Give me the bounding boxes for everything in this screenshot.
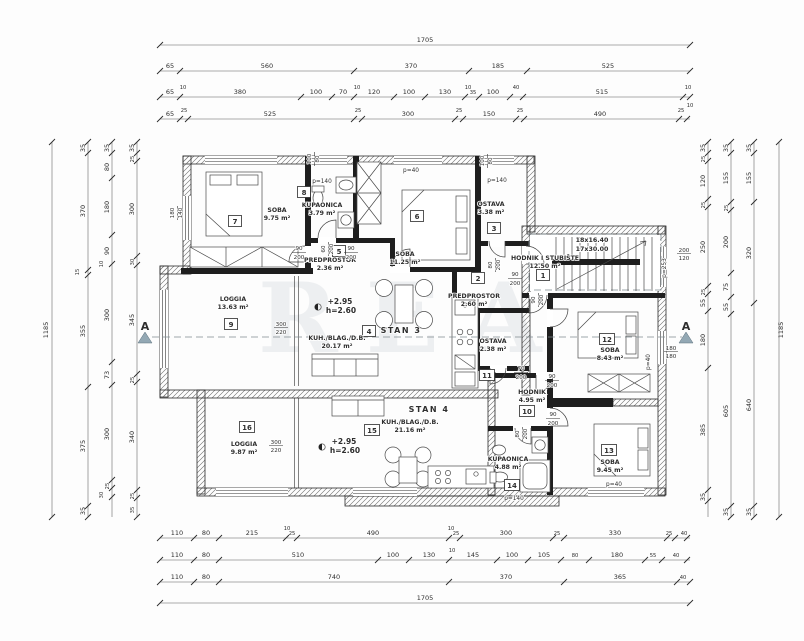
dim-label: 100 — [487, 88, 499, 96]
room-area: 11.25 m² — [390, 259, 421, 266]
room-number: 15 — [367, 427, 377, 435]
dim-label: 490 — [594, 110, 606, 118]
dim-label: 100 — [310, 88, 322, 96]
dim-label: 25 — [355, 108, 362, 114]
dim-label: 25 — [724, 205, 730, 212]
dim-label: 355 — [79, 325, 87, 337]
room-number: 14 — [507, 482, 517, 490]
room-name: SOBA — [600, 347, 619, 354]
room-name: PREDPROSTOR — [448, 293, 500, 300]
room-number: 12 — [602, 336, 612, 344]
window-size: 140 — [178, 207, 184, 218]
dimension-labels-left: 1185 35 370 15 355 375 35 35 80 180 90 1… — [42, 144, 136, 515]
door-size: 200 — [329, 243, 335, 254]
room-number: 7 — [233, 218, 238, 226]
room-area: 9.45 m² — [597, 467, 624, 474]
dim-label: 25 — [130, 156, 136, 163]
dim-label: 345 — [128, 314, 136, 326]
floor-plan-page: REA A A +2.95 h=2.60 +2.95 h=2.60 — [0, 0, 804, 641]
dim-label: 15 — [75, 269, 81, 276]
room-number: 13 — [604, 447, 614, 455]
dim-label: 180 — [611, 551, 623, 559]
room-number: 8 — [302, 189, 307, 197]
room-number: 4 — [367, 328, 372, 336]
dim-label: 155 — [722, 172, 730, 184]
dim-label: 375 — [79, 440, 87, 452]
dim-label: 110 — [171, 551, 183, 559]
dim-label: 100 — [403, 88, 415, 96]
dim-label: 25 — [701, 289, 707, 296]
room-area: 4.95 m² — [519, 397, 546, 404]
level-elevation-stan3: +2.95 — [328, 297, 353, 306]
dim-label: 65 — [166, 110, 174, 118]
door-size: 60 — [321, 245, 327, 253]
dim-label: 185 — [492, 62, 504, 70]
window-size: 220 — [276, 330, 287, 336]
room-area: 3.79 m² — [309, 210, 336, 217]
room-number: 3 — [492, 225, 497, 233]
dim-label: 300 — [500, 529, 512, 537]
dim-label: 300 — [402, 110, 414, 118]
dim-label: 35 — [745, 508, 753, 516]
dim-label: 10 — [99, 261, 105, 268]
dim-label: 73 — [103, 371, 111, 379]
dim-label: 90 — [103, 247, 111, 255]
dim-label: 200 — [722, 236, 730, 248]
door-size: 90 — [549, 412, 557, 418]
dim-label: 30 — [99, 492, 105, 499]
room-area: 21.16 m² — [395, 427, 426, 434]
dim-label: 55 — [722, 303, 730, 311]
dim-label: 105 — [538, 551, 550, 559]
room-area: 13.63 m² — [218, 304, 249, 311]
dim-label: 365 — [614, 573, 626, 581]
dim-label: 215 — [246, 529, 258, 537]
dim-label: 100 — [506, 551, 518, 559]
room-name: KUPAONICA — [488, 456, 529, 463]
parapet-label: p=40 — [403, 168, 419, 174]
dim-label: 490 — [367, 529, 379, 537]
dim-label: 65 — [166, 88, 174, 96]
window-size: 300 — [271, 440, 282, 446]
dim-label: 25 — [130, 377, 136, 384]
dim-label: 25 — [105, 483, 111, 490]
room-number: 5 — [337, 248, 342, 256]
dim-label: 35 — [699, 493, 707, 501]
level-elevation-stan4: +2.95 — [332, 437, 357, 446]
dim-label: 40 — [680, 575, 687, 581]
room-area: 9.75 m² — [264, 215, 291, 222]
dim-label: 35 — [79, 144, 87, 152]
door-size: 70 — [517, 366, 525, 372]
parapet-label: p=140 — [312, 179, 332, 185]
dim-label: 30 — [130, 259, 136, 266]
door-size: 200 — [547, 383, 558, 389]
dim-label: 510 — [292, 551, 304, 559]
dim-label: 35 — [699, 144, 707, 152]
floor-plan-drawing: REA A A +2.95 h=2.60 +2.95 h=2.60 — [0, 0, 804, 641]
dim-label: 25 — [701, 156, 707, 163]
dim-label: 25 — [701, 202, 707, 209]
dim-label: 55 — [650, 553, 657, 559]
dim-label: 150 — [483, 110, 495, 118]
dim-label: 80 — [202, 573, 210, 581]
door-size: 200 — [548, 421, 559, 427]
dim-label: 35 — [103, 144, 111, 152]
dim-label: 80 — [572, 553, 579, 559]
dim-label: 385 — [699, 424, 707, 436]
dim-label: 70 — [339, 88, 347, 96]
window-size: 100 — [480, 155, 486, 166]
dim-label: 1705 — [417, 36, 434, 44]
dim-label: 10 — [180, 85, 187, 91]
dim-label: 130 — [423, 551, 435, 559]
room-name: SOBA — [267, 207, 286, 214]
dim-label: 25 — [289, 531, 296, 537]
door-size: 200 — [523, 428, 529, 439]
dim-label: 300 — [103, 428, 111, 440]
dim-label: 25 — [666, 531, 673, 537]
dim-label: 25 — [554, 531, 561, 537]
door-size: 200 — [294, 255, 305, 261]
dim-label: 35 — [722, 508, 730, 516]
dim-label: 300 — [128, 203, 136, 215]
dim-label: 370 — [500, 573, 512, 581]
dim-label: 560 — [261, 62, 273, 70]
door-size: 200 — [496, 259, 502, 270]
dim-label: 35 — [470, 90, 477, 96]
dim-label: 110 — [171, 573, 183, 581]
dim-label: 1185 — [777, 322, 785, 339]
dim-label: 35 — [79, 507, 87, 515]
dim-label: 100 — [387, 551, 399, 559]
dim-label: 340 — [128, 431, 136, 443]
room-area: 9.87 m² — [231, 449, 258, 456]
dim-label: 130 — [439, 88, 451, 96]
dim-label: 25 — [456, 108, 463, 114]
dim-label: 155 — [745, 172, 753, 184]
room-area: 2.38 m² — [480, 346, 507, 353]
dim-label: 525 — [602, 62, 614, 70]
dim-label: 370 — [79, 205, 87, 217]
window-size: 300 — [276, 322, 287, 328]
room-area: 20.17 m² — [322, 343, 353, 350]
dim-label: 180 — [699, 334, 707, 346]
room-name: OSTAVA — [478, 201, 505, 208]
room-name: LOGGIA — [220, 296, 246, 303]
room-number: 9 — [229, 321, 234, 329]
door-size: 80 — [488, 261, 494, 269]
door-size: 90 — [295, 246, 303, 252]
room-area: 2.36 m² — [317, 265, 344, 272]
level-height-stan4: h=2.60 — [330, 446, 360, 455]
parapet-label: p=140 — [487, 178, 507, 184]
room-name: HODNIK — [518, 389, 546, 396]
room-name: SOBA — [600, 459, 619, 466]
room-name: KUH./BLAG./D.B. — [308, 335, 365, 342]
room-name: KUH./BLAG./D.B. — [381, 419, 438, 426]
door-size: 200 — [516, 375, 527, 381]
room-number: 1 — [541, 272, 546, 280]
dim-label: 25 — [181, 108, 188, 114]
room-name: LOGGIA — [231, 441, 257, 448]
dim-label: 80 — [202, 529, 210, 537]
room-name: KUPAONICA — [302, 202, 343, 209]
dimension-labels-top: 1705 65 560 370 185 525 65 10 380 100 70… — [166, 36, 693, 118]
dim-label: 35 — [130, 507, 136, 514]
dim-label: 25 — [130, 493, 136, 500]
dim-label: 80 — [103, 163, 111, 171]
door-size: 90 — [347, 246, 355, 252]
dim-label: 35 — [722, 144, 730, 152]
room-area: 3.38 m² — [478, 209, 505, 216]
dim-label: 10 — [685, 85, 692, 91]
stairs-spec-line1: 18x16.40 — [576, 237, 609, 244]
dim-label: 120 — [699, 175, 707, 187]
window-size: 120 — [679, 256, 690, 262]
room-name: HODNIK I STUBIŠTE — [511, 253, 579, 262]
level-height-stan3: h=2.60 — [326, 306, 356, 315]
dimension-labels-right: 35 25 120 25 250 25 55 180 385 35 35 155… — [699, 144, 785, 516]
dim-label: 25 — [453, 531, 460, 537]
parapet-label: p=40 — [606, 482, 622, 488]
dim-label: 380 — [234, 88, 246, 96]
dim-label: 300 — [103, 309, 111, 321]
dim-label: 525 — [264, 110, 276, 118]
dim-label: 320 — [745, 247, 753, 259]
door-size: 90 — [548, 374, 556, 380]
section-label-left: A — [141, 320, 150, 333]
dim-label: 55 — [699, 299, 707, 307]
dim-label: 640 — [745, 399, 753, 411]
window-size: 180 — [666, 354, 677, 360]
dim-label: 1705 — [417, 594, 434, 602]
door-size: 200 — [539, 294, 545, 305]
window-size: 200 — [679, 248, 690, 254]
door-size: 90 — [511, 272, 519, 278]
window-size: 80 — [488, 157, 494, 165]
dim-label: 250 — [699, 241, 707, 253]
room-name: SOBA — [395, 251, 414, 258]
room-area: 4.88 m² — [495, 464, 522, 471]
door-size: 90 — [531, 296, 537, 304]
dim-label: 740 — [328, 573, 340, 581]
room-name: OSTAVA — [480, 338, 507, 345]
dim-label: 35 — [128, 144, 136, 152]
section-label-right: A — [682, 320, 691, 333]
dim-label: 10 — [354, 85, 361, 91]
dim-label: 10 — [687, 103, 694, 109]
door-size: 80 — [515, 430, 521, 438]
dim-label: 515 — [596, 88, 608, 96]
parapet-label: p=40 — [646, 354, 652, 370]
dim-label: 1185 — [42, 322, 50, 339]
parapet-label: p=140 — [504, 496, 524, 502]
dim-label: 25 — [517, 108, 524, 114]
dimension-labels-bottom: 110 80 215 10 25 490 10 25 300 25 330 25… — [171, 526, 688, 602]
window-size: 100 — [307, 153, 313, 164]
dim-label: 75 — [722, 283, 730, 291]
dim-label: 180 — [103, 201, 111, 213]
door-size: 200 — [510, 281, 521, 287]
window-size: 180 — [170, 207, 176, 218]
room-number: 6 — [415, 213, 420, 221]
window-size: 180 — [666, 346, 677, 352]
unit-label-stan4: STAN 4 — [409, 405, 450, 414]
room-number: 11 — [482, 372, 492, 380]
parapet-label: p=253 — [662, 258, 668, 278]
dim-label: 40 — [513, 85, 520, 91]
room-number: 2 — [476, 275, 481, 283]
dim-label: 370 — [405, 62, 417, 70]
dim-label: 120 — [368, 88, 380, 96]
unit-label-stan3: STAN 3 — [381, 326, 422, 335]
dim-label: 25 — [678, 108, 685, 114]
dim-label: 10 — [449, 548, 456, 554]
dim-label: 40 — [673, 553, 680, 559]
room-number: 10 — [522, 408, 532, 416]
room-area: 12.50 m² — [530, 263, 561, 270]
dim-label: 605 — [722, 405, 730, 417]
stairs-spec-line2: 17x30.00 — [576, 246, 609, 253]
dim-label: 330 — [609, 529, 621, 537]
window-size: 220 — [271, 448, 282, 454]
dim-label: 110 — [171, 529, 183, 537]
room-area: 2.60 m² — [461, 301, 488, 308]
window-size: 80 — [315, 155, 321, 163]
dim-label: 80 — [202, 551, 210, 559]
door-size: 200 — [346, 255, 357, 261]
dim-label: 35 — [745, 144, 753, 152]
dim-label: 145 — [467, 551, 479, 559]
dim-label: 65 — [166, 62, 174, 70]
room-number: 16 — [242, 424, 252, 432]
room-area: 8.43 m² — [597, 355, 624, 362]
dim-label: 40 — [681, 531, 688, 537]
